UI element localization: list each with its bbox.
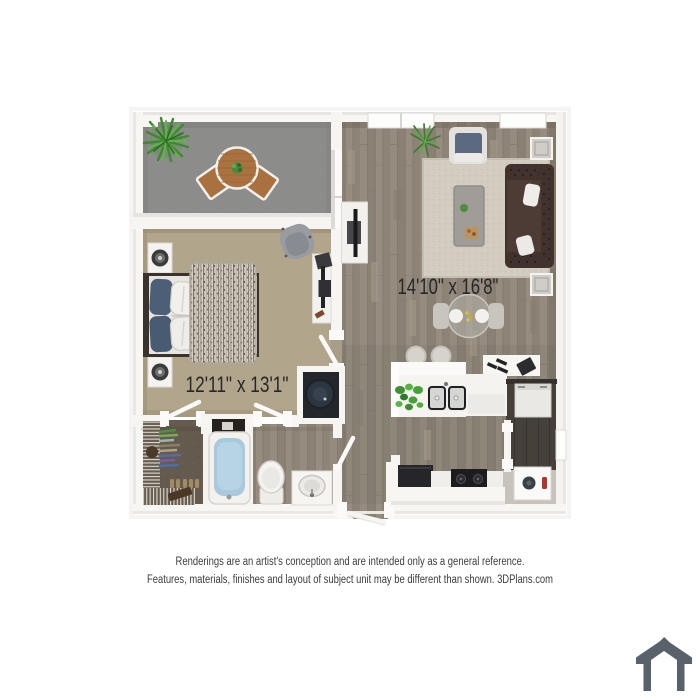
svg-text:Renderings are an artist's con: Renderings are an artist's conception an… — [176, 556, 525, 568]
svg-text:14'10" x 16'8": 14'10" x 16'8" — [398, 274, 499, 299]
svg-text:12'11" x 13'1": 12'11" x 13'1" — [186, 372, 289, 397]
svg-text:Features, materials, finishes: Features, materials, finishes and layout… — [147, 574, 553, 586]
